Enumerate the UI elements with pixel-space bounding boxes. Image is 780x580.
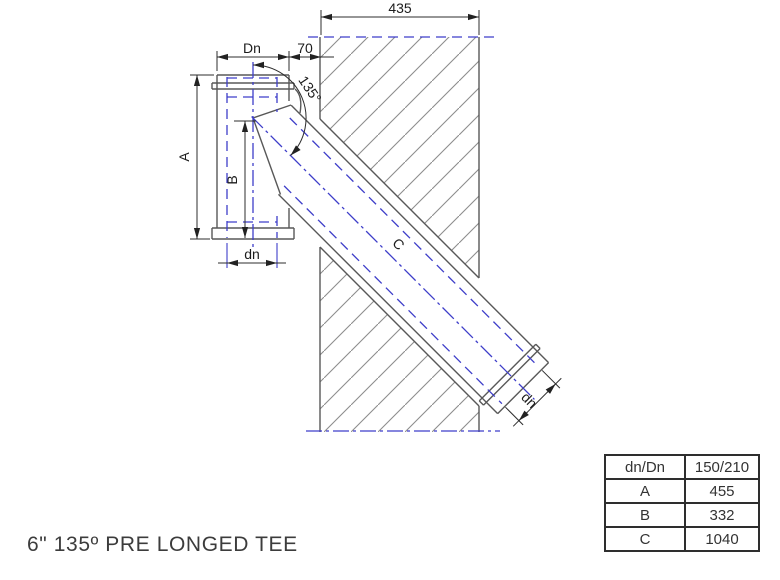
- dimension-435: 435: [321, 0, 479, 35]
- table-row: B 332: [605, 503, 759, 527]
- inner-liner-hidden-lines: [227, 77, 277, 238]
- dimension-B: B: [224, 121, 256, 238]
- wall-hatch-lower: [320, 247, 479, 432]
- drawing-title: 6" 135º PRE LONGED TEE: [27, 533, 298, 557]
- dimension-A: A: [176, 75, 214, 239]
- dim-70-label: 70: [297, 40, 313, 56]
- spec-table: dn/Dn 150/210 A 455 B 332 C 1040: [604, 454, 760, 552]
- spec-label-cell: C: [605, 527, 685, 551]
- table-row: C 1040: [605, 527, 759, 551]
- spec-label-cell: dn/Dn: [605, 455, 685, 479]
- spec-value-cell: 332: [685, 503, 759, 527]
- dim-A-label: A: [176, 152, 192, 162]
- spec-value-cell: 455: [685, 479, 759, 503]
- dim-Dn-label: Dn: [243, 40, 261, 56]
- dimension-dn-bottom: dn: [218, 243, 286, 268]
- spec-value-cell: 150/210: [685, 455, 759, 479]
- dn-branch-end-label: dn: [518, 389, 540, 411]
- dim-dn-bottom-label: dn: [244, 246, 260, 262]
- length-c-label: C: [389, 235, 407, 253]
- drawing-sheet: dn C 435 Dn 70: [0, 0, 780, 580]
- spec-label-cell: B: [605, 503, 685, 527]
- spec-value-cell: 1040: [685, 527, 759, 551]
- spec-label-cell: A: [605, 479, 685, 503]
- table-row: A 455: [605, 479, 759, 503]
- dim-435-label: 435: [388, 0, 412, 16]
- vertical-pipe: [212, 62, 301, 247]
- table-row: dn/Dn 150/210: [605, 455, 759, 479]
- dim-B-label: B: [224, 175, 240, 184]
